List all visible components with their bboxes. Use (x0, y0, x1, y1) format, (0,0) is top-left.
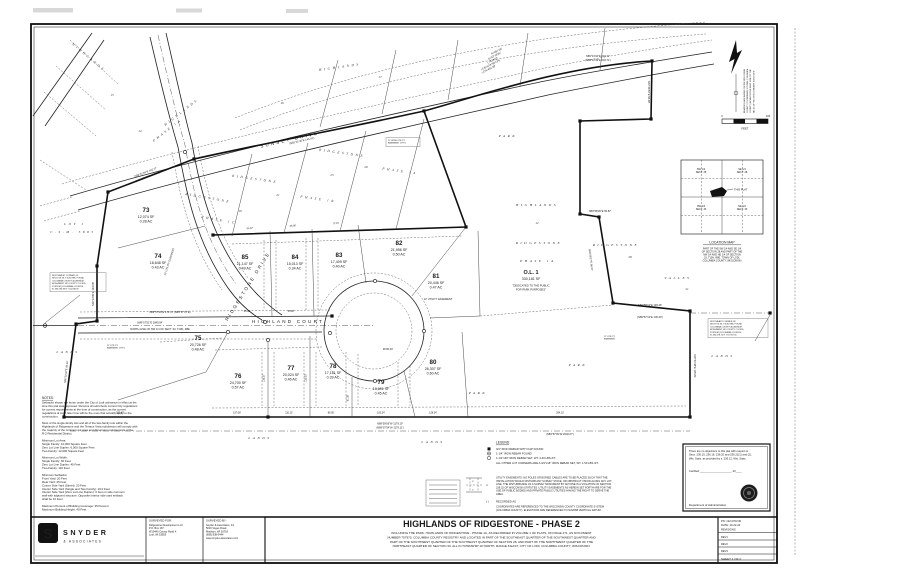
lot-area-ac: 0.45 AC (375, 392, 388, 396)
section-cell-label: SECT. 33 (737, 208, 748, 211)
monument-square-icon (330, 314, 333, 317)
title-block: S SNYDER & ASSOCIATES SURVEYED FOR: Ridg… (31, 517, 777, 563)
bearing-annotation: N89°59'06"W 1179.19' (377, 422, 403, 426)
note-line: construction. (42, 414, 59, 418)
note-line: Two-Family: 110 Feet (42, 466, 70, 470)
lot-area-sf: 20,726 SF (190, 343, 207, 347)
dimension-label: 86.00' (328, 412, 335, 415)
monument-bullseye-icon (44, 325, 45, 326)
monument-square-icon (95, 319, 98, 322)
lot-number: 76 (235, 373, 242, 380)
adjacent-plat-name: PARK (498, 134, 517, 138)
monument-square-icon (611, 301, 614, 304)
cert-agency: Department of Administration (689, 503, 727, 507)
cert-body-line: There are no objections to this plat wit… (689, 449, 749, 453)
adjacent-plat-name: PHASE 1A (519, 259, 556, 263)
north-arrow-icon (729, 40, 742, 74)
dimension-label: 157.08' (233, 412, 241, 415)
curve-table-stub (426, 480, 460, 506)
corner-note-line: N: 480,596.83 E: 704,948.58 (52, 289, 79, 291)
legend-datum-line: COORDINATES ARE REFERENCED TO THE WISCON… (496, 505, 604, 509)
adjacent-plat-name: LANDS (710, 354, 734, 358)
lot-number: 74 (155, 253, 162, 260)
certification-box: There are no objections to this plat wit… (683, 444, 770, 511)
dimension-label: 128.34' (429, 412, 437, 415)
monument-circle-icon (183, 150, 186, 153)
setback-lines (80, 146, 686, 408)
section-cell-label: SECT. 28 (696, 171, 707, 174)
note-line: R-2 Residential District. (42, 432, 72, 436)
cert-body-line: Wis. Stats. as provided by s. 236.12, Wi… (689, 456, 746, 460)
surveyed-for-line: Lodi, WI 53555 (149, 533, 167, 537)
dimension-label: 100.24' (377, 412, 385, 415)
bearing-annotation: N89°57'51"E 2849.94' (137, 321, 163, 325)
legend-symbol-circle (487, 456, 490, 459)
location-map-caption-line: COLUMBIA COUNTY, WISCONSIN (703, 260, 742, 263)
dimension-label: 72.15' (333, 222, 340, 225)
monument-square-icon (464, 225, 467, 228)
sketch-dim: 6' (472, 481, 474, 483)
seal-center (747, 491, 751, 495)
bearing-annotation: S00°21'48"E 105.81' (693, 354, 697, 378)
plat-drawing: 7312,074 SF0.28 AC7418,648 SF0.43 AC7520… (0, 0, 909, 588)
monument-circle-icon (266, 338, 269, 341)
lot-area-sf: 24,700 SF (230, 381, 247, 385)
lot-area-ac: 0.49 AC (239, 267, 252, 271)
ridgestone-centerline (158, 35, 236, 284)
lot-number: 75 (195, 335, 202, 342)
adjacent-plat-name: LOT 1 (63, 222, 86, 226)
boundary-line (580, 61, 690, 417)
corner-note-line: NORTHEAST CORNER OF (710, 320, 737, 323)
legend-item-text: ALL OTHER LOT CORNERS ARE A 3/4"x18" IRO… (496, 461, 599, 465)
dimension-label: 65.00' (288, 310, 295, 313)
lot-line (118, 28, 605, 417)
surveyed-by-line: www.snyder-associates.com (206, 536, 238, 540)
corner-note-line: MONUMENT, WI COUNTY COORD. (710, 329, 744, 331)
plot-stamp (176, 9, 202, 13)
sheet-description-line: INCLUDING THE PARK, HIGHLANDS OF RIDGEST… (391, 531, 591, 535)
revision-entries: REV1REV2REV3 (721, 535, 728, 553)
monument-square-icon (266, 415, 269, 418)
lot-number: 80 (430, 359, 437, 366)
monument-square-icon (62, 415, 65, 418)
sheet-title: HIGHLANDS OF RIDGESTONE - PHASE 2 (403, 519, 580, 529)
this-plat-shape (710, 187, 727, 197)
lot-area-sf: 18,648 SF (150, 261, 167, 265)
sheet-borders (31, 24, 777, 563)
lot-area-ac: 0.34 AC (289, 267, 302, 271)
surveyed-by-lines: Snyder & Associates, Inc.5010 Voges Road… (206, 523, 238, 540)
dimension-label: 110.15' (285, 412, 293, 415)
bearing-annotation: NORTH LINE OF NW 1/4 OF SECT. 33, T10N, … (130, 327, 190, 331)
this-plat-leader (727, 189, 733, 190)
legend-item-text: 1-1/4" IRON REBAR FOUND (496, 452, 532, 456)
lot-area-sf: 17,409 SF (331, 260, 348, 264)
north-arrow-group: BEARINGS ARE BASED ON THE WISCONSINCOUNT… (721, 40, 770, 131)
notes-title: NOTES: (42, 396, 54, 400)
adjacent-lot-number: 25 (330, 173, 334, 177)
monuments (43, 59, 771, 418)
file-path-stub (34, 555, 144, 557)
legend-symbol-bullseye (489, 453, 490, 454)
adjacent-lot-number: 19 (238, 209, 242, 213)
adjacent-plat-name: PHASE 1B (299, 194, 336, 203)
revision-entry: REV1 (721, 535, 728, 539)
lot-number: 81 (433, 273, 440, 280)
lot-area-ac: 0.28 AC (140, 220, 153, 224)
adjacent-lot-number: 26 (364, 165, 368, 169)
bearing-annotation: N89°58'45"E 59.87' (589, 209, 612, 213)
section-grid (681, 160, 763, 234)
sketch-lines (466, 478, 482, 492)
lot-area-sf: 26,307 SF (425, 367, 442, 371)
monument-circle-icon (422, 329, 425, 332)
scale-hundred: 100 (766, 114, 771, 118)
revision-entry: REV3 (721, 549, 728, 553)
sketch-dim: 6' (472, 490, 474, 492)
cul-de-sac-setback (336, 293, 412, 369)
monument-square-icon (768, 311, 771, 314)
outlot-dedication: FOR PARK PURPOSES" (516, 288, 546, 292)
logo-sub: & ASSOCIATES (64, 540, 103, 544)
dimension-label: 65.00' (290, 224, 297, 227)
bearing-annotation: R=60.00' (383, 347, 394, 351)
adjacent-lot-number: 17 (378, 75, 382, 79)
corner-note-line: MONUMENT, WI COUNTY COORD. (52, 283, 86, 285)
lot-area-ac: 0.47 AC (430, 286, 443, 290)
sunset-ext-dashed (40, 197, 80, 221)
monument-square-icon (192, 157, 195, 160)
monument-square-icon (688, 415, 691, 418)
adjacent-plat-name: RIDGESTONE (318, 148, 366, 159)
sunset-row-dashed (62, 40, 712, 184)
adjacent-plat-name: LANDS (420, 440, 444, 444)
lot-number: 82 (396, 240, 403, 247)
scale-bar-segment (734, 119, 746, 124)
this-plat-label: THIS PLAT (734, 188, 748, 192)
logo-letter: S (43, 526, 52, 542)
legend-datum-line: (COLUMBIA COUNTY). ELEVATIONS ARE REFERE… (496, 508, 602, 512)
margin-stamps (33, 8, 795, 556)
adjacent-lot-number: 15 (110, 93, 114, 97)
bearing-annotation: N00°13'35"E 134.58' (91, 282, 95, 306)
adjacent-plat-name: HIGHLANDS (70, 41, 106, 72)
monument-square-icon (211, 233, 214, 236)
corner-note-line: COLUMBIA COUNTY ALUMINUM (52, 279, 84, 282)
adjacent-plat-name: HIGHLANDS (515, 203, 558, 207)
legend-title: LEGEND: (496, 441, 510, 445)
monument-square-icon (597, 215, 600, 218)
legend-items: 3/4" IRON REBAR WITH CAP FOUND1-1/4" IRO… (486, 447, 612, 512)
location-map: THIS PLAT SW 1/4SECT. 28SE 1/4SECT. 28NW… (681, 160, 763, 263)
bearing-basis-line: COUNTY) IN WHICH THE EAST LINE OF THE (749, 69, 752, 113)
sheet-number: SHEET 1 OF 2 (721, 557, 741, 561)
adjacent-lot-number: 21 (685, 287, 689, 291)
logo-name: SNYDER (63, 528, 109, 537)
adjacent-plat-name: PARK (568, 363, 587, 367)
cert-text: There are no objections to this plat wit… (689, 449, 752, 473)
lot-lines (40, 28, 613, 417)
lot-area-ac: 0.60 AC (427, 372, 440, 376)
bearing-annotation: (N89°57'54"W 1179.11') (376, 426, 403, 430)
legend-symbol-square (488, 447, 491, 450)
bearing-annotation: S00°46'50"E 58.48' (647, 81, 651, 104)
adjacent-plat-name: VALLEY (664, 276, 691, 280)
adjacent-lot-number: 28 (628, 255, 632, 259)
lot-area-sf: 21,147 SF (237, 262, 254, 266)
plot-stamp (286, 9, 308, 13)
inner-border (34, 27, 774, 560)
outer-border (31, 24, 777, 563)
notes-block: NOTES: Setbacks shown are those under th… (42, 396, 138, 511)
section-cell-label: SECT. 28 (737, 171, 748, 174)
lot-area-sf: 20,024 SF (283, 373, 300, 377)
adjacent-lot-number: 14 (138, 129, 142, 133)
monument-square-icon (422, 109, 425, 112)
note-line: Maximum Building Height: 40 Feet (42, 507, 86, 511)
legend-item-text: 3/4" IRON REBAR WITH CAP FOUND (496, 447, 543, 451)
monument-circle-icon (373, 279, 376, 282)
monument-square-icon (578, 212, 581, 215)
lot-number: 85 (242, 254, 249, 261)
corner-note-line: COLUMBIA COUNTY ALUMINUM (710, 325, 742, 328)
corner-note-line: EASEMENT (TYP.) (388, 142, 406, 145)
bearing-annotation: (N89°13'49"E 204.71') (585, 58, 611, 62)
bearing-annotation: N89°13'10"E 204.77' (586, 54, 610, 58)
lot-area-sf: 15,013 SF (287, 262, 304, 266)
note-line: Two-Family: 12,000 Square Feet (42, 449, 84, 453)
lot-area-sf: 12,074 SF (138, 215, 155, 219)
bearing-annotation: N89°58'14"E 139.46' (638, 303, 662, 307)
north-road-dashed (235, 22, 706, 130)
project-number: PN: 122.0703.30 (721, 519, 742, 523)
corner-note-line: N: 480,578.75 E: 707,787.56 (710, 335, 737, 337)
revision-entry: REV2 (721, 542, 728, 546)
bearing-basis-line: BEARINGS ARE BASED ON THE WISCONSIN (743, 68, 746, 113)
dimension-label: 64.97' (247, 227, 254, 230)
lot-area-sf: 20,446 SF (428, 281, 445, 285)
table-rows (429, 485, 457, 503)
bearing-basis-note: BEARINGS ARE BASED ON THE WISCONSINCOUNT… (743, 68, 755, 113)
lot-number: 77 (288, 365, 295, 372)
adjacent-plat-labels: SUNSET DRIVERIDGESTONE DRIVEHIGHLAND COU… (50, 41, 734, 444)
scale-zero: 0 (721, 114, 723, 118)
bearing-annotation: 12' UTILITY EASEMENT (424, 297, 453, 301)
surveyed-by-label: SURVEYED BY: (206, 519, 227, 523)
project-date: DATE: 10-22-24 (721, 523, 741, 527)
monument-circle-icon (328, 331, 331, 334)
bearing-annotation: (S89°57'09"W 2640.07') (546, 432, 574, 436)
corner-note-line: EASEMENT (604, 338, 616, 341)
lot-area-sf: 19,691 SF (373, 387, 390, 391)
easement-sketch-icon: 6' 6' 12' (466, 478, 489, 492)
corner-note-line: SYSTEM (COLUMBIA) COORDS: (52, 285, 84, 288)
official-seal-icon (741, 485, 758, 502)
outlot-dedication: "DEDICATED TO THE PUBLIC (512, 284, 549, 288)
bearing-annotations: R=467.00'Δ=53°18'25"L=434.52'LCB=N78°58'… (63, 46, 697, 436)
lot-number: 79 (378, 379, 385, 386)
lot-area-ac: 0.40 AC (333, 265, 346, 269)
monument-square-icon (95, 264, 98, 267)
location-map-title: LOCATION MAP (709, 241, 735, 245)
sheet-description-line: PART OF THE SOUTHWEST QUARTER OF THE SOU… (390, 540, 593, 544)
lot-number: 73 (143, 207, 150, 214)
dimension-label: 264.10' (556, 412, 564, 415)
monument-square-icon (650, 59, 653, 62)
lot-area-ac: 0.48 AC (192, 348, 205, 352)
adjacent-plat-name: RIDGESTONE (184, 192, 231, 204)
adjacent-plat-name: LANDS (247, 436, 271, 440)
adjacent-plat-name: RIDGESTONE (592, 243, 639, 247)
scale-bar-segment (757, 119, 769, 124)
surveyed-for-lines: Ridgestone Development LLCP.O. Box 167W1… (149, 523, 183, 537)
sunset-drive-edge (78, 64, 714, 210)
revisions-label: REVISIONS (721, 528, 736, 532)
corner-note-line: NORTHWEST CORNER OF (52, 275, 79, 277)
adjacent-lot-number: 16 (280, 101, 284, 105)
boundary-line (213, 111, 466, 235)
adjacent-plat-name: PHASE 1C (200, 215, 237, 225)
street-name: HIGHLAND COURT (252, 319, 324, 324)
location-map-caption: PART OF THE SW 1/4 AND SE 1/4OF SECTION … (702, 248, 743, 263)
cert-body-line: Secs. 236.15, 236.16, 236.20 and 236.21(… (689, 453, 752, 457)
monument-circle-icon (373, 379, 376, 382)
monument-square-icon (74, 322, 77, 325)
legend-item-text: 1-1/4"x30" IRON REBAR SET, WT. 4.30 LBS.… (496, 456, 556, 460)
boundary-curve (424, 61, 652, 111)
roads (33, 22, 772, 431)
adjacent-plat-name: LANDS (55, 350, 79, 354)
monument-square-icon (688, 309, 691, 312)
lot-area-ac: 0.43 AC (152, 266, 165, 270)
corner-note-line: 12' UTILITY (107, 345, 119, 347)
monument-circle-icon (226, 330, 229, 333)
corner-note-line: SYSTEM (COLUMBIA) COORDS: (710, 331, 742, 334)
legend-recorded-symbol: ( ) (486, 500, 489, 504)
adjacent-plat-name: HIGHLANDS (318, 62, 361, 72)
company-logo: S SNYDER & ASSOCIATES (34, 523, 144, 557)
adjacent-plat-name: RIDGESTONE (231, 174, 279, 185)
outlot-area: 330,181 SF (522, 277, 541, 281)
lot-number: 78 (330, 363, 337, 370)
cul-de-sac (324, 281, 424, 381)
plot-stamp (33, 8, 73, 13)
legend-block: LEGEND: 3/4" IRON REBAR WITH CAP FOUND1-… (466, 441, 612, 512)
bearing-annotation: S09°39'27"E 86.57' (588, 249, 595, 272)
cert-signature-line: Certified _____________________, 20____ (689, 469, 742, 473)
surveyed-for-label: SURVEYED FOR: (149, 519, 172, 523)
lot-labels: 7312,074 SF0.28 AC7418,648 SF0.43 AC7520… (138, 207, 550, 396)
lot-area-sf: 21,956 SF (391, 248, 408, 252)
table-box (426, 480, 460, 506)
corner-note-line: 12' WIDE UTILITY (388, 140, 406, 142)
sheet-description-line: NUMBER 757970, COLUMBIA COUNTY REGISTRY … (387, 535, 596, 539)
monument-square-icon (649, 117, 652, 120)
adjacent-plat-name: PHASE 1A (381, 166, 418, 175)
corner-note-line: SECTION 33, T10N, R8E, FOUND (710, 324, 743, 326)
adjacent-plat-name: C.S.M. 5885 (50, 230, 96, 234)
dimension-label: 132.00' (305, 374, 308, 382)
lot-area-ac: 0.39 AC (327, 376, 340, 380)
lot-area-ac: 0.46 AC (285, 378, 298, 382)
bearing-basis-line: NE 1/4 OF SECTION 33 BEARS S00°21'48"E (752, 70, 755, 113)
note-line: shall be 10 Feet (42, 497, 63, 501)
monument-square-icon (106, 190, 109, 193)
corner-note-line: EASEMENT (TYP.) (107, 347, 125, 350)
monument-square-icon (578, 119, 581, 122)
dimension-label: 65.00' (244, 310, 251, 313)
corner-note-line: SECTION 33, T10N, R8E, FOUND (52, 278, 85, 280)
dimension-label: 81.05' (347, 394, 350, 401)
bearing-annotation: (N89°57'13"E 139.40') (637, 315, 663, 319)
sheet-description: INCLUDING THE PARK, HIGHLANDS OF RIDGEST… (387, 531, 596, 548)
legend-recorded-as: RECORDED AS (496, 500, 516, 504)
plat-sheet: 7312,074 SF0.28 AC7418,648 SF0.43 AC7520… (0, 0, 909, 588)
lot-number: 84 (292, 254, 299, 261)
outlot-number: O.L. 1 (524, 270, 539, 276)
dimension-label: 135.27' (263, 374, 266, 382)
dimension-labels: 64.97'65.00'72.15'65.00'65.00'192.40'157… (116, 222, 564, 415)
scale-unit: FEET (741, 127, 748, 131)
lot-number: 83 (336, 252, 343, 259)
bearing-annotation: N89°57'29"E 170.72' (N89°57'07"E) (149, 310, 190, 314)
sheet-description-line: NORTHEAST QUARTER OF SECTION 33, ALL IN … (393, 544, 591, 548)
adjacent-lot-number: 21 (276, 193, 280, 197)
section-cell-label: SECT. 33 (696, 208, 707, 211)
bearing-basis-line: COUNTY COORDINATE SYSTEM (COLUMBIA (746, 68, 749, 113)
corner-note-line: 12' UTILITY (604, 336, 616, 338)
lot-area-ac: 0.50 AC (393, 253, 406, 257)
corner-road (33, 33, 104, 126)
sketch-dim: 12' (486, 485, 489, 487)
legend-easement-line: USE OF PUBLIC BODIES AND PRIVATE PUBLIC … (496, 489, 610, 493)
legend-easement-line: AREA. (496, 492, 504, 496)
lot-area-sf: 17,181 SF (325, 371, 342, 375)
adjacent-lot-number: 12 (535, 221, 539, 225)
adjacent-plat-name: RIDGESTONE (515, 241, 562, 245)
lot-area-ac: 0.57 AC (232, 386, 245, 390)
adjacent-plat-name: PARK (468, 391, 487, 395)
